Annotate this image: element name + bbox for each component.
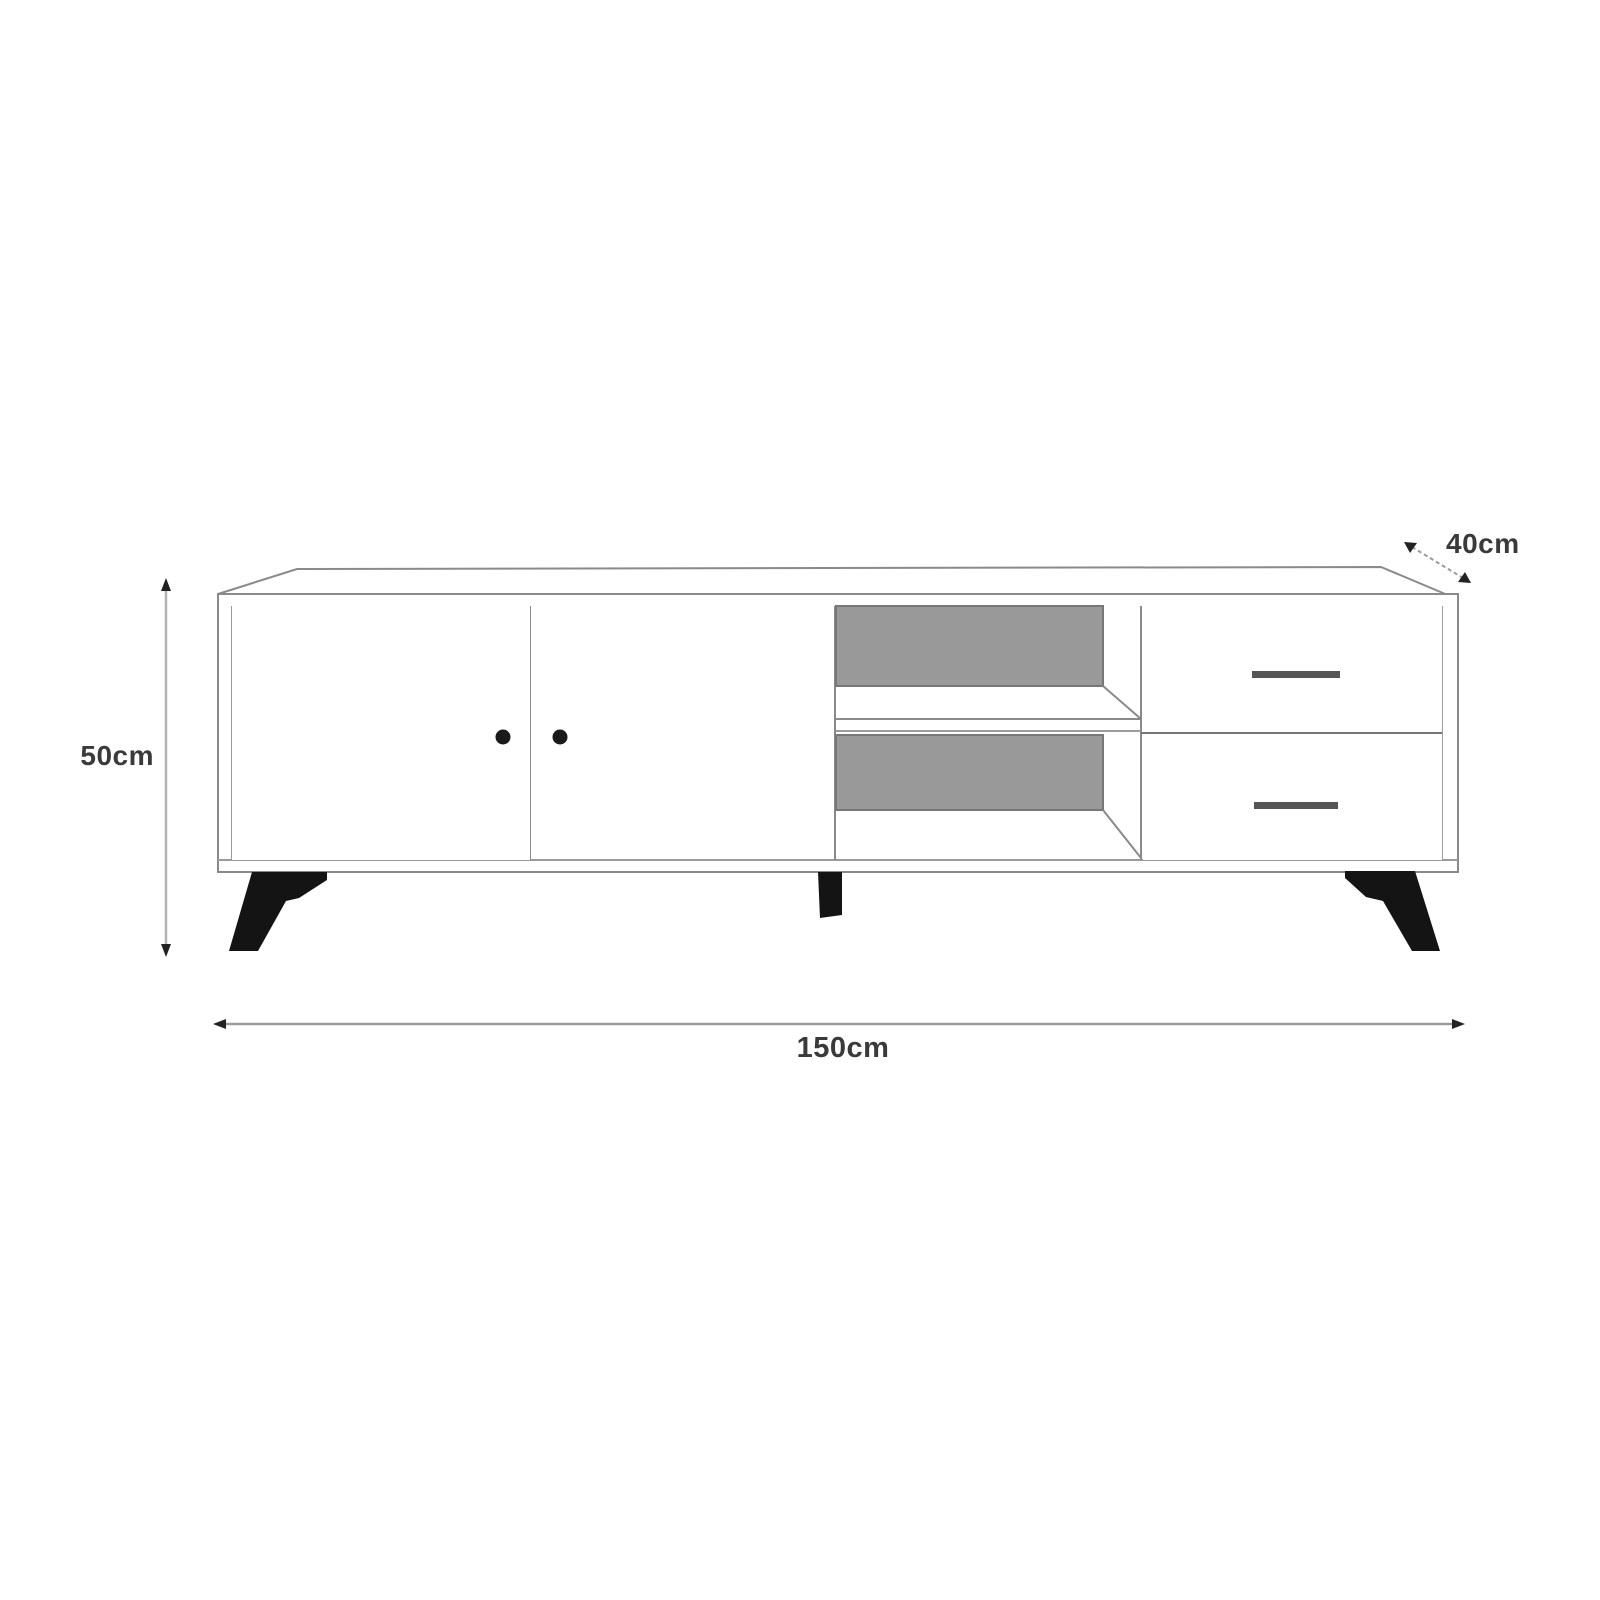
height-dimension <box>161 578 171 957</box>
width-arrow-left <box>213 1019 226 1029</box>
left-door-knob <box>496 730 511 745</box>
tv-stand-drawing <box>0 0 1600 1600</box>
height-dimension-label: 50cm <box>58 740 154 772</box>
drawer-handle-lower <box>1254 802 1338 809</box>
drawer-upper <box>1143 606 1442 733</box>
leg-center <box>818 872 842 918</box>
leg-front-right <box>1345 871 1440 951</box>
back-panel-upper <box>836 606 1103 686</box>
depth-arrow-upper <box>1404 542 1417 553</box>
depth-dimension-label: 40cm <box>1446 528 1520 560</box>
depth-arrow-lower <box>1458 572 1471 583</box>
height-arrow-top <box>161 578 171 591</box>
furniture-dimension-diagram: 50cm 150cm 40cm <box>0 0 1600 1600</box>
drawer-handle-upper <box>1252 671 1340 678</box>
drawer-stack <box>1141 606 1442 860</box>
width-dimension-label: 150cm <box>770 1032 916 1065</box>
legs <box>229 871 1440 951</box>
height-arrow-bottom <box>161 944 171 957</box>
top-panel-surface <box>218 567 1450 596</box>
right-door-knob <box>553 730 568 745</box>
drawer-lower <box>1143 733 1442 860</box>
width-arrow-right <box>1452 1019 1465 1029</box>
width-dimension <box>213 1019 1465 1029</box>
leg-front-left <box>229 872 327 951</box>
left-door <box>232 606 530 860</box>
back-panel-lower <box>836 735 1103 810</box>
